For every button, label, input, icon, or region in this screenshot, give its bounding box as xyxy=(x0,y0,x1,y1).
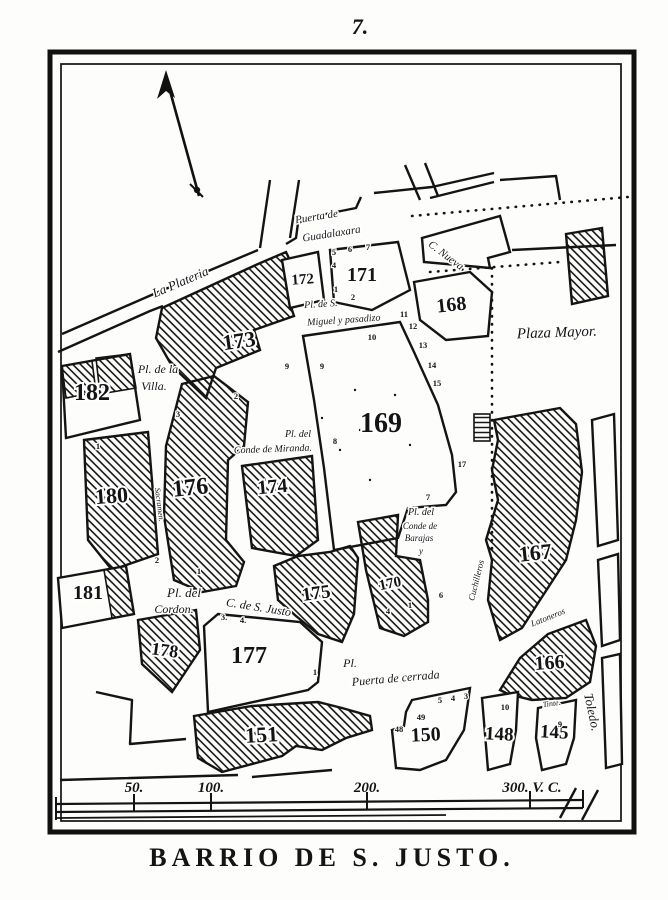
lot-number-1: 6 xyxy=(348,244,352,254)
scale-mark-1: 100. xyxy=(198,780,224,796)
street-label-conde-de: Conde de xyxy=(403,521,437,531)
block-174-label: 174 xyxy=(257,475,289,500)
scanned-map-page: 7. BARRIO DE S. JUSTO. xyxy=(0,0,668,900)
block-171-label: 171 xyxy=(347,264,377,286)
right-strip-1 xyxy=(592,414,618,546)
lot-number-26: 4. xyxy=(240,615,246,625)
block-178-label: 178 xyxy=(150,638,180,662)
scale-mark-3: 300. V. C. xyxy=(501,780,561,796)
lot-number-19: 1 xyxy=(197,566,201,576)
lot-number-15: 15 xyxy=(433,378,442,388)
street-label-barajas-y: y xyxy=(418,546,423,556)
lot-number-0: 5 xyxy=(332,247,336,257)
lot-number-20: 1 xyxy=(96,441,100,451)
lot-number-34: 9 xyxy=(558,719,562,729)
lot-number-5: 2 xyxy=(351,292,355,302)
block-182-label: 182 xyxy=(74,380,110,406)
street-label-pl-cerrada: Pl. xyxy=(342,656,357,670)
page-number: 7. xyxy=(352,14,369,39)
block-169-label: 169 xyxy=(360,408,402,439)
block-175-label: 175 xyxy=(301,581,332,606)
lot-number-18: 2 xyxy=(155,555,159,565)
scale-mark-0: 50. xyxy=(125,780,144,796)
block-151-label: 151 xyxy=(244,721,278,748)
lot-number-16: 17 xyxy=(458,459,467,469)
lot-number-33: 10 xyxy=(501,702,510,712)
street-label-cordon: Cordon. xyxy=(154,602,193,616)
lot-number-10: 3 xyxy=(176,409,180,419)
street-label-pl-del-barajas: Pl. del xyxy=(407,507,434,518)
block-167-label: 167 xyxy=(517,538,552,566)
map-title: BARRIO DE S. JUSTO. xyxy=(149,843,514,872)
lot-number-30: 5 xyxy=(438,695,442,705)
block-173-label: 173 xyxy=(221,326,257,355)
block-148-label: 148 xyxy=(485,723,515,745)
block-150-label: 150 xyxy=(410,723,441,747)
street-label-pl-del-miranda: Pl. del xyxy=(284,429,311,440)
lot-number-27: 1 xyxy=(313,667,317,677)
lot-number-8: 10 xyxy=(368,332,377,342)
lot-number-12: 12 xyxy=(409,321,418,331)
lot-number-4: 1 xyxy=(334,284,338,294)
lot-number-25: 3. xyxy=(221,612,227,622)
lot-number-17: 8 xyxy=(333,436,337,446)
block-177-label: 177 xyxy=(231,643,267,669)
block-166-label: 166 xyxy=(534,651,565,675)
lot-number-24: 6 xyxy=(439,590,443,600)
block-172-label: 172 xyxy=(291,271,315,289)
top-right-hatched-strip xyxy=(566,228,608,304)
scale-mark-2: 200. xyxy=(353,780,380,796)
map-figure: 7. BARRIO DE S. JUSTO. xyxy=(0,0,668,900)
lot-number-9: 2 xyxy=(234,391,238,401)
street-label-barajas: Barajas xyxy=(405,533,434,543)
block-176-label: 176 xyxy=(171,473,210,503)
block-174-shape xyxy=(242,456,318,556)
steps-symbol xyxy=(474,414,490,441)
street-label-villa: Villa. xyxy=(141,379,166,393)
right-strip-3 xyxy=(602,654,622,768)
block-181-label: 181 xyxy=(73,582,103,604)
lot-number-11: 11 xyxy=(400,309,408,319)
lot-number-13: 13 xyxy=(419,340,428,350)
lot-number-29: 49 xyxy=(417,712,426,722)
block-168-label: 168 xyxy=(435,293,467,318)
lot-number-28: 48 xyxy=(395,724,404,734)
lot-number-32: 3 xyxy=(464,691,468,701)
lot-number-14: 14 xyxy=(428,360,437,370)
street-label-pl-del-cordon: Pl. del xyxy=(166,585,201,600)
block-145-label: 145 xyxy=(540,721,570,743)
right-strip-2 xyxy=(598,554,620,646)
street-label-plaza-mayor: Plaza Mayor. xyxy=(516,324,598,343)
lot-number-23: 1 xyxy=(408,600,412,610)
block-180-label: 180 xyxy=(94,482,129,509)
street-label-pl-de-la: Pl. de la xyxy=(137,362,178,376)
lot-number-7: 9 xyxy=(320,361,324,371)
lot-number-6: 9 xyxy=(285,361,289,371)
